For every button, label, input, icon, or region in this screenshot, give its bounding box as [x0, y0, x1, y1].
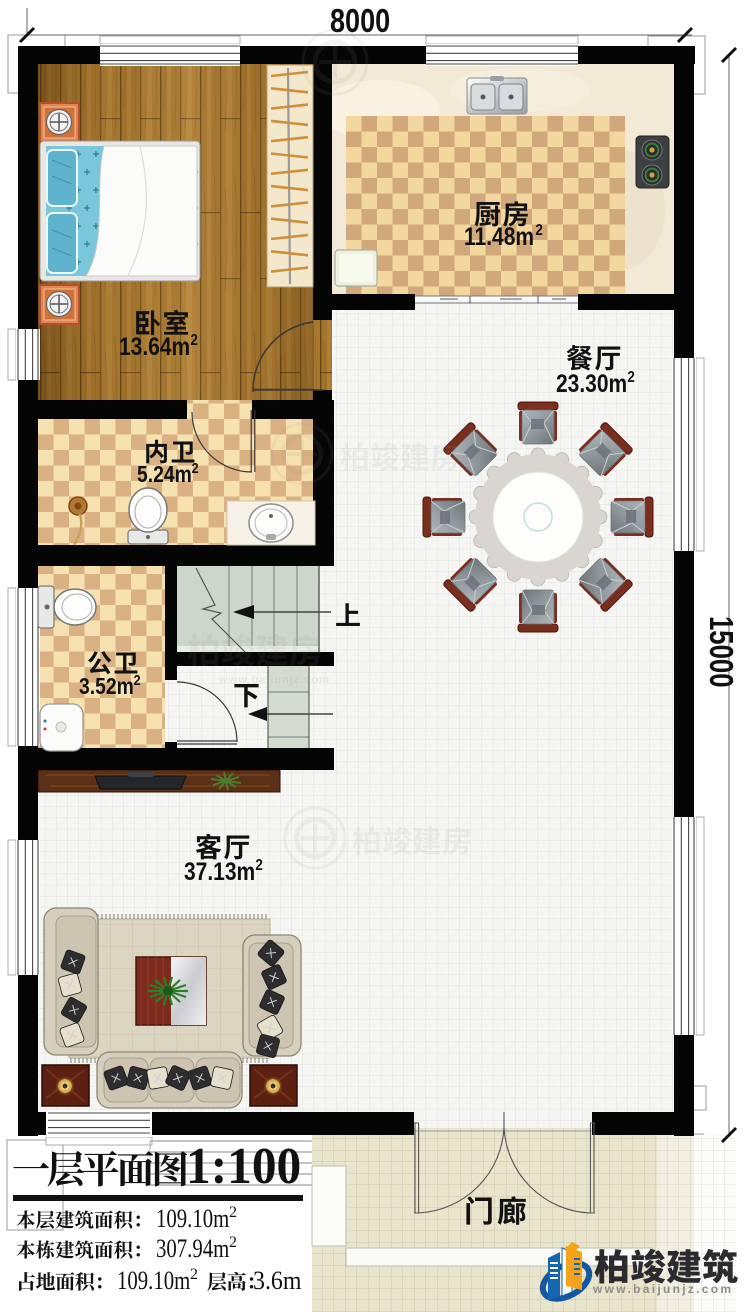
svg-text:2: 2 [229, 1204, 237, 1221]
svg-text:2: 2 [255, 857, 262, 874]
svg-text:15000: 15000 [702, 616, 739, 688]
svg-text:3.52m: 3.52m [79, 675, 134, 700]
svg-text:www.baijunjz.com: www.baijunjz.com [218, 674, 330, 686]
svg-text:2: 2 [535, 222, 542, 239]
svg-text:www.baijunjz.com: www.baijunjz.com [592, 1282, 733, 1296]
svg-text:2: 2 [190, 1266, 198, 1283]
svg-text:8000: 8000 [330, 4, 390, 40]
svg-text:2: 2 [192, 459, 199, 476]
svg-text:3.6m: 3.6m [253, 1267, 302, 1295]
svg-text:109.10m: 109.10m [156, 1205, 229, 1234]
svg-text:5.24m: 5.24m [137, 463, 192, 488]
svg-text:2: 2 [134, 671, 141, 688]
svg-text:1:100: 1:100 [186, 1137, 301, 1194]
svg-text:13.64m: 13.64m [119, 332, 190, 360]
svg-text:23.30m: 23.30m [556, 369, 627, 397]
svg-text:2: 2 [190, 332, 197, 349]
svg-text:307.94m: 307.94m [156, 1235, 229, 1264]
svg-text:11.48m: 11.48m [464, 222, 534, 250]
svg-text:2: 2 [627, 369, 634, 386]
svg-text:109.10m: 109.10m [117, 1267, 190, 1296]
svg-text:37.13m: 37.13m [184, 857, 255, 885]
svg-text:2: 2 [229, 1234, 237, 1251]
